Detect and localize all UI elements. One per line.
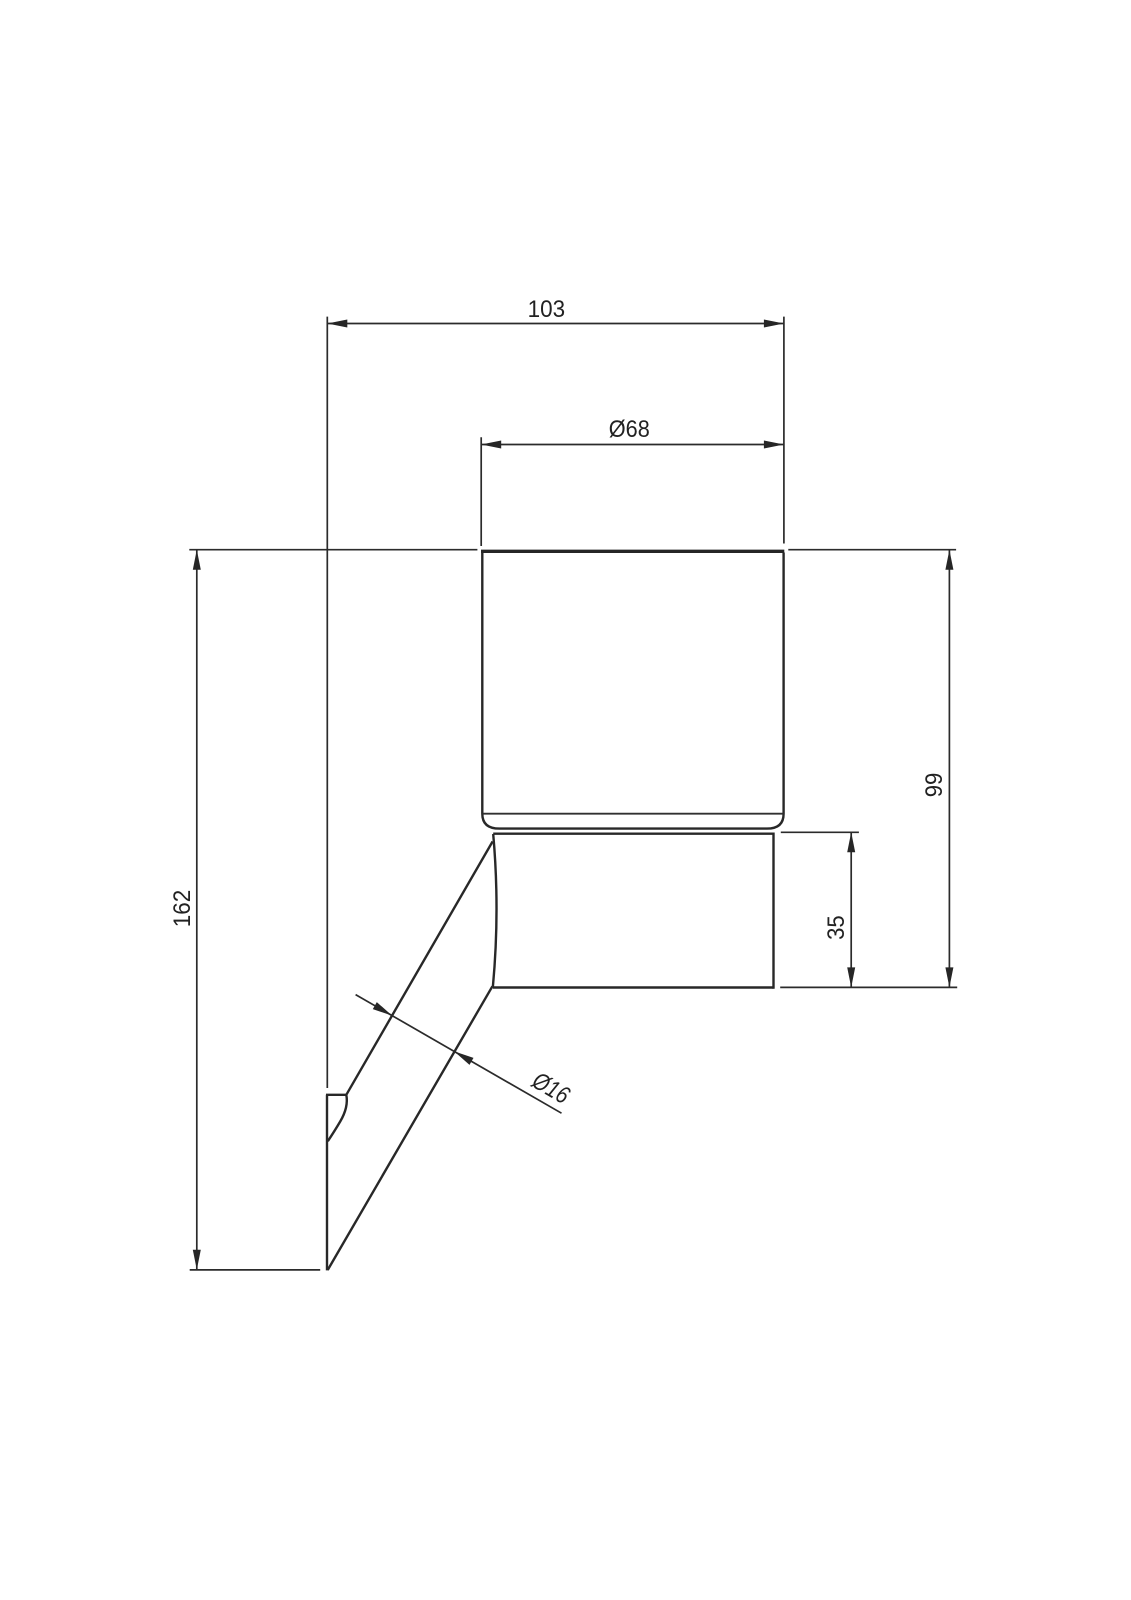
svg-text:35: 35 xyxy=(823,915,850,940)
svg-text:99: 99 xyxy=(921,773,948,798)
svg-text:103: 103 xyxy=(528,296,566,323)
svg-text:Ø68: Ø68 xyxy=(609,416,650,443)
svg-text:162: 162 xyxy=(169,890,196,928)
